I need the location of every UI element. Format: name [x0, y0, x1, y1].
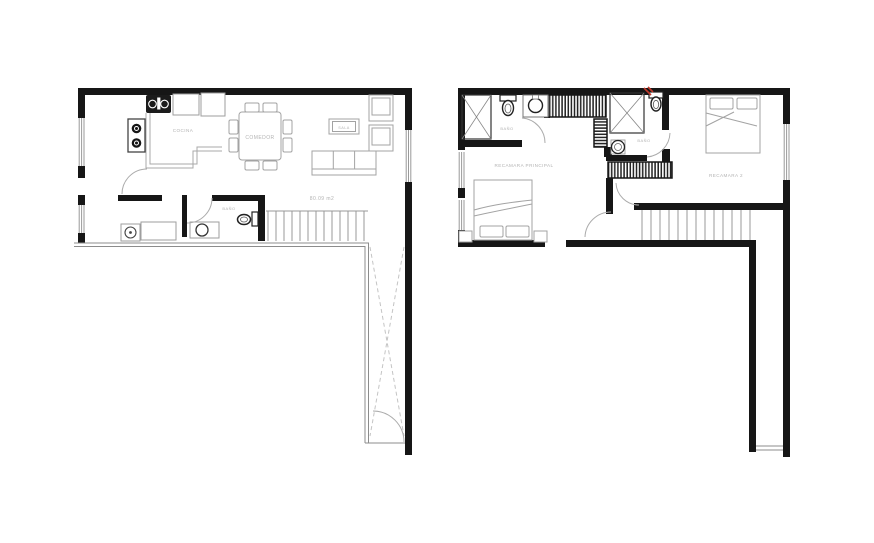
dining-chair	[245, 161, 259, 170]
room-label-recamara-2: RECAMARA 2	[709, 173, 743, 178]
pillow	[506, 226, 529, 237]
stove	[146, 95, 171, 113]
pillow	[737, 98, 757, 109]
floor-plan-drawing: COCINA COMEDOR SALA	[0, 0, 874, 543]
bathroom-sink	[523, 95, 548, 117]
sofa	[312, 151, 376, 175]
closet	[608, 162, 672, 178]
dining-chair	[229, 120, 238, 134]
paper-background	[0, 0, 874, 543]
dining-chair	[283, 120, 292, 134]
closet	[594, 119, 607, 147]
cooktop	[128, 119, 145, 152]
kitchen-sink-counter	[173, 94, 199, 115]
dining-chair	[229, 138, 238, 152]
room-label-recamara-principal: RECAMARA PRINCIPAL	[494, 163, 553, 168]
washer-knob	[129, 231, 132, 234]
armchair-cushion	[372, 128, 390, 145]
dining-chair	[245, 103, 259, 112]
bathroom-sink	[611, 140, 625, 154]
nightstand	[459, 231, 472, 242]
closet	[548, 95, 606, 117]
nightstand	[534, 231, 547, 242]
refrigerator	[201, 93, 225, 116]
pillow	[710, 98, 733, 109]
armchair-cushion	[372, 98, 390, 115]
laundry-counter	[141, 222, 176, 240]
dining-chair	[263, 161, 277, 170]
floorplan-page: COCINA COMEDOR SALA	[0, 0, 874, 543]
room-label-cocina: COCINA	[173, 128, 194, 133]
area-label: 80.09 m2	[310, 196, 334, 202]
dining-chair	[263, 103, 277, 112]
room-label-sala: SALA	[338, 126, 350, 130]
pillow	[480, 226, 503, 237]
dining-chair	[283, 138, 292, 152]
room-label-bano-2: BAÑO	[637, 138, 650, 143]
room-label-bano: BAÑO	[222, 206, 235, 211]
room-label-bano-1: BAÑO	[500, 126, 513, 131]
room-label-comedor: COMEDOR	[245, 135, 274, 141]
